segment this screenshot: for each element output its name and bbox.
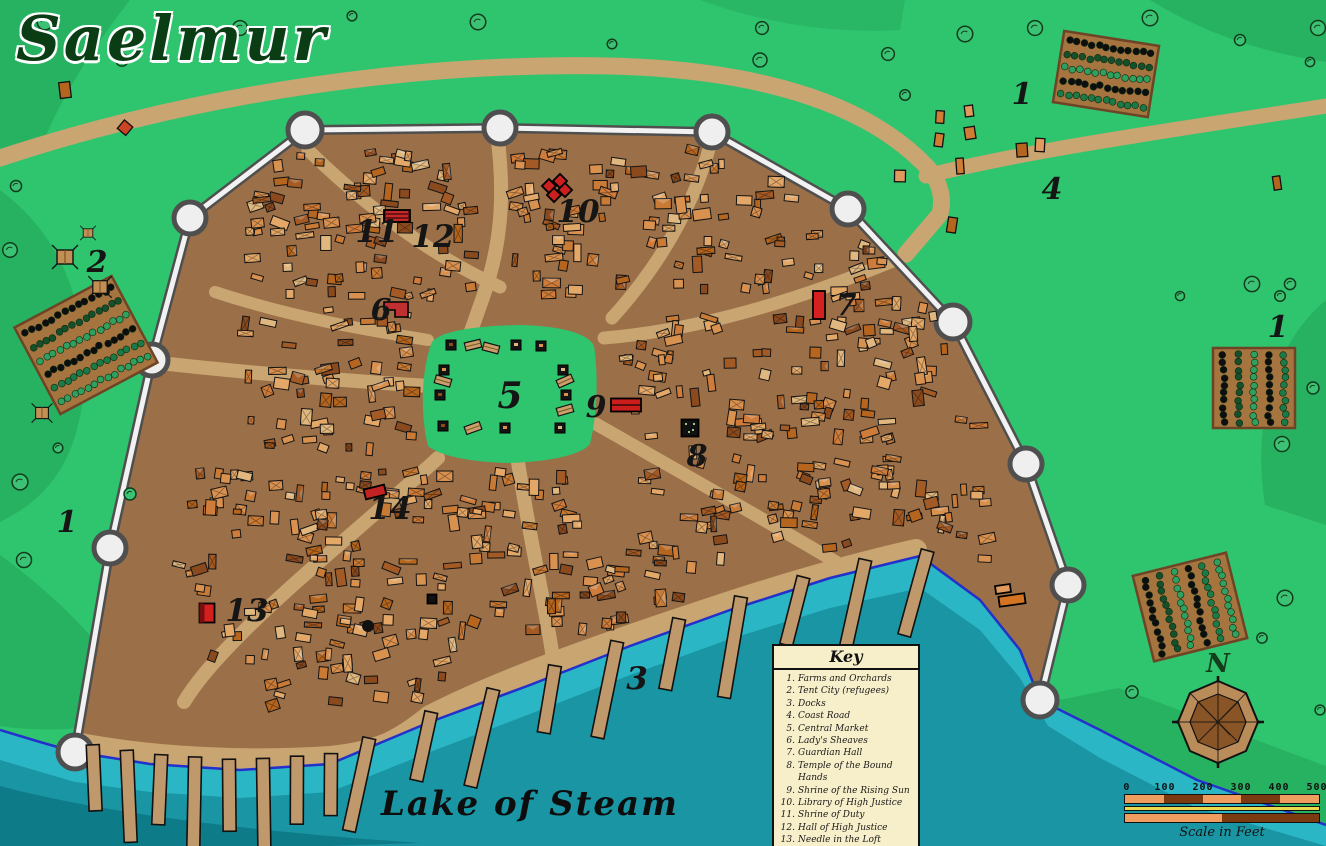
lake-label: Lake of Steam xyxy=(350,784,710,824)
compass-north-label: N xyxy=(1205,649,1231,679)
scale-bar-top xyxy=(1124,794,1320,804)
key-item: 8.Temple of the Bound Hands xyxy=(776,760,913,785)
key-item: 9.Shrine of the Rising Sun xyxy=(776,785,913,797)
scale-bar-middle xyxy=(1124,806,1320,811)
map-title: Saelmur xyxy=(16,2,328,75)
key-title: Key xyxy=(774,646,918,670)
key-item: 5.Central Market xyxy=(776,723,913,735)
scale-ticks: 0100200300400500 xyxy=(1124,782,1320,794)
scale-bar-bottom xyxy=(1124,813,1320,823)
scale-tick: 200 xyxy=(1192,782,1213,793)
scale-tick: 0 xyxy=(1123,782,1130,793)
key-item: 6.Lady's Sheaves xyxy=(776,735,913,747)
key-item: 12.Hall of High Justice xyxy=(776,822,913,834)
key-list: 1.Farms and Orchards2.Tent City (refugee… xyxy=(774,670,918,846)
key-item: 3.Docks xyxy=(776,698,913,710)
scale-tick: 400 xyxy=(1269,782,1290,793)
key-item: 7.Guardian Hall xyxy=(776,747,913,759)
key-item: 11.Shrine of Duty xyxy=(776,809,913,821)
scale-tick: 500 xyxy=(1307,782,1326,793)
scale-caption: Scale in Feet xyxy=(1124,825,1320,840)
scale-tick: 100 xyxy=(1154,782,1175,793)
map-artwork: N xyxy=(0,0,1326,846)
key-item: 4.Coast Road xyxy=(776,710,913,722)
key-item: 1.Farms and Orchards xyxy=(776,673,913,685)
fantasy-city-map: N Saelmur Lake of Steam 1421135678910111… xyxy=(0,0,1326,846)
key-item: 2.Tent City (refugees) xyxy=(776,685,913,697)
key-item: 13.Needle in the Loft xyxy=(776,834,913,846)
scale-tick: 300 xyxy=(1230,782,1251,793)
scale-bar: 0100200300400500 Scale in Feet xyxy=(1124,782,1320,840)
key-box: Key 1.Farms and Orchards2.Tent City (ref… xyxy=(772,644,920,846)
key-item: 10.Library of High Justice xyxy=(776,797,913,809)
